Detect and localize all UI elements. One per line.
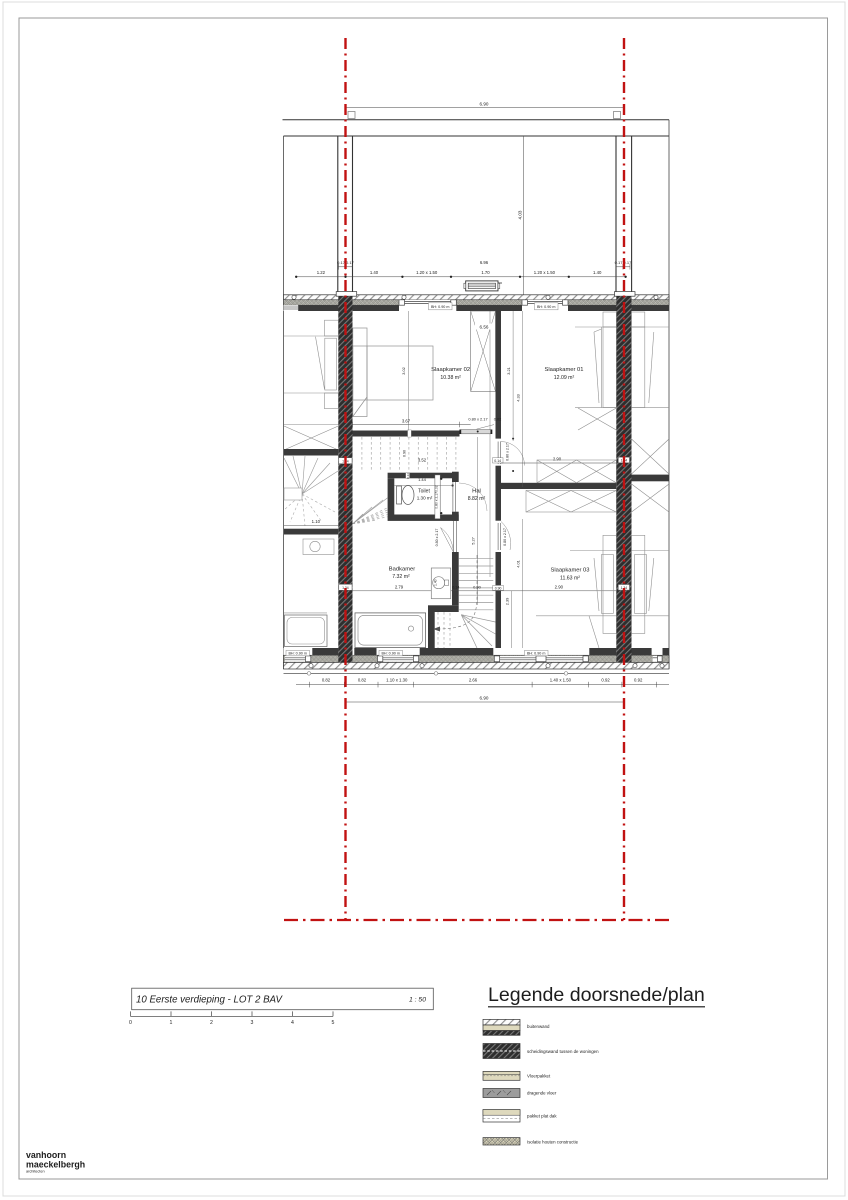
svg-text:0.14: 0.14 [452,585,459,589]
svg-text:1.10: 1.10 [312,519,321,524]
svg-text:0.92: 0.92 [601,678,610,683]
svg-text:3: 3 [251,1020,254,1026]
svg-text:0.80 x 2.17: 0.80 x 2.17 [468,417,487,422]
svg-text:11.63 m²: 11.63 m² [560,576,580,582]
svg-text:4: 4 [291,1020,294,1026]
svg-text:Toilet: Toilet [418,488,430,494]
svg-text:1.44: 1.44 [418,477,427,482]
svg-text:0.80 x 2.170.02: 0.80 x 2.170.02 [435,485,439,508]
svg-text:1.40: 1.40 [593,270,602,275]
svg-text:0.90: 0.90 [495,586,502,590]
svg-text:1.40 x 1.50: 1.40 x 1.50 [550,678,572,683]
svg-text:0.80 x 2.17: 0.80 x 2.17 [506,443,510,461]
svg-text:1 : 50: 1 : 50 [409,997,426,1004]
svg-text:Legende doorsnede/plan: Legende doorsnede/plan [488,984,705,1006]
svg-text:buitenwand: buitenwand [527,1024,550,1029]
svg-text:Badkamer: Badkamer [389,567,415,573]
svg-text:BH: 0.90 m: BH: 0.90 m [527,652,545,656]
svg-text:0: 0 [129,1020,132,1026]
svg-text:1.70: 1.70 [481,270,490,275]
svg-text:dragende vloer: dragende vloer [527,1091,557,1096]
svg-text:8.82 m²: 8.82 m² [468,496,486,502]
svg-text:6.56: 6.56 [480,325,489,330]
svg-text:4.03: 4.03 [518,210,523,219]
svg-text:architecten: architecten [26,1170,45,1174]
svg-text:10 Eerste verdieping - LOT 2 B: 10 Eerste verdieping - LOT 2 BAV [136,995,283,1006]
svg-text:0.92: 0.92 [634,678,643,683]
svg-text:2.90: 2.90 [555,584,564,589]
svg-text:Slaapkamer 02: Slaapkamer 02 [431,367,470,373]
svg-text:5: 5 [332,1020,335,1026]
svg-text:0.90: 0.90 [473,584,482,589]
svg-text:0.90: 0.90 [403,450,407,457]
svg-text:BH: 0.90 m: BH: 0.90 m [381,652,399,656]
svg-text:7.32 m²: 7.32 m² [392,574,410,580]
svg-text:Isolatie houten constructie: Isolatie houten constructie [527,1140,579,1145]
svg-text:1: 1 [170,1020,173,1026]
svg-text:1.40: 1.40 [370,270,379,275]
svg-text:0.82: 0.82 [358,678,367,683]
svg-text:maeckelbergh: maeckelbergh [26,1159,85,1169]
svg-text:Vloerpakket: Vloerpakket [527,1074,551,1079]
svg-text:Slaapkamer 03: Slaapkamer 03 [551,568,590,574]
svg-text:Hal: Hal [472,489,481,495]
svg-text:1.20 x 1.50: 1.20 x 1.50 [534,270,556,275]
svg-text:scheidingswand tussen de wonin: scheidingswand tussen de woningen [527,1049,599,1054]
svg-text:10.38 m²: 10.38 m² [440,375,461,381]
svg-text:4.01: 4.01 [515,560,520,568]
svg-text:Slaapkamer 01: Slaapkamer 01 [545,367,584,373]
svg-text:3.02: 3.02 [401,367,406,375]
svg-text:BH: 0.90 m: BH: 0.90 m [288,652,306,656]
svg-text:1.10 x 1.30: 1.10 x 1.30 [386,678,408,683]
svg-text:BH: 0.90 m: BH: 0.90 m [537,305,555,309]
svg-text:6.96: 6.96 [480,260,489,265]
svg-text:BH: 0.90 m: BH: 0.90 m [431,305,449,309]
svg-text:3.52: 3.52 [418,457,427,462]
svg-text:4.33: 4.33 [515,394,520,402]
svg-text:1.30 m²: 1.30 m² [417,496,433,501]
svg-text:6.90: 6.90 [480,102,489,107]
svg-text:3.67: 3.67 [402,418,411,423]
svg-text:2.79: 2.79 [395,584,404,589]
svg-text:2.66: 2.66 [469,678,478,683]
svg-text:0.80 x 2.17: 0.80 x 2.17 [503,528,507,546]
svg-text:1.22: 1.22 [317,270,326,275]
svg-text:0.14: 0.14 [494,459,501,463]
svg-text:0.82: 0.82 [322,678,331,683]
svg-text:pakket plat dak: pakket plat dak [527,1114,557,1119]
svg-text:6.90: 6.90 [480,696,489,701]
svg-text:2.39: 2.39 [504,598,509,606]
svg-text:3.21: 3.21 [506,367,511,375]
svg-text:2.90: 2.90 [553,456,562,461]
svg-text:0.02: 0.02 [494,417,502,422]
svg-text:0.80 x 2.17: 0.80 x 2.17 [435,529,439,547]
svg-text:12.09 m²: 12.09 m² [554,375,575,381]
svg-text:1.20 x 1.50: 1.20 x 1.50 [416,270,438,275]
svg-text:1.40: 1.40 [434,579,438,586]
svg-text:2: 2 [210,1020,213,1026]
svg-text:0.14: 0.14 [406,473,410,479]
svg-text:5.27: 5.27 [470,537,475,545]
